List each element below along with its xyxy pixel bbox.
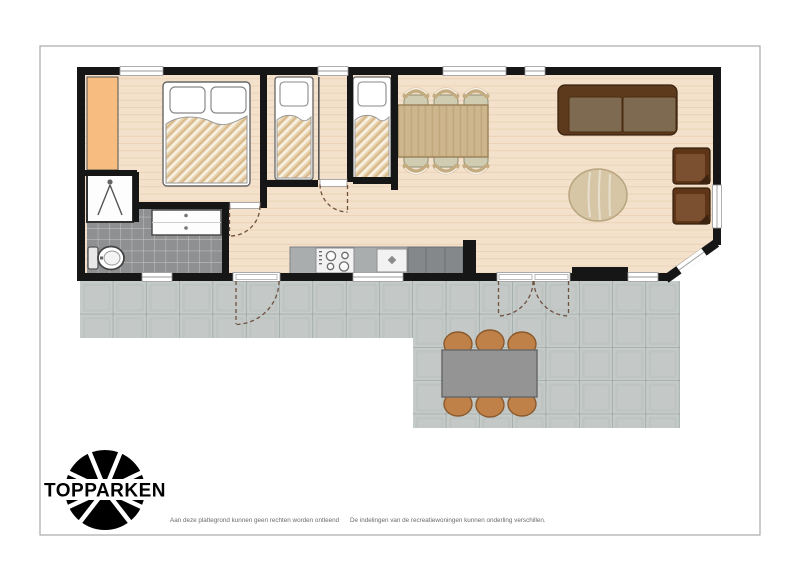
round-rug <box>569 169 627 221</box>
shower <box>87 175 133 222</box>
pillow <box>280 82 308 106</box>
wall-bedroom3-right <box>391 67 398 190</box>
logo-wordmark: TOPPARKEN <box>44 481 166 502</box>
blanket <box>166 116 247 183</box>
wall-top <box>77 67 721 75</box>
floorplan-svg: TOPPARKEN Aan deze plattegrond kunnen ge… <box>0 0 800 581</box>
armchair-2 <box>673 188 710 224</box>
terrace <box>80 281 680 428</box>
wall-bedroom2-bottom <box>260 180 318 187</box>
sofa-cushion <box>623 97 676 132</box>
wall-bedroom1-bottom <box>133 202 230 209</box>
pillow <box>211 87 246 113</box>
pillow <box>358 82 386 106</box>
disclaimer-right: De indelingen van de recreatiewoningen k… <box>350 517 546 524</box>
pillow <box>170 87 205 113</box>
dining-set <box>398 89 488 174</box>
sofa <box>558 85 677 135</box>
single-bed-2 <box>353 77 391 180</box>
blanket <box>277 115 311 178</box>
disclaimer-left: Aan deze plattegrond kunnen geen rechten… <box>170 517 340 524</box>
window-bathroom <box>142 273 172 282</box>
cooktop <box>316 248 354 273</box>
blanket <box>355 115 389 178</box>
toilet <box>88 247 124 270</box>
topparken-logo: TOPPARKEN <box>43 450 167 530</box>
window-right-wall <box>713 185 722 228</box>
wall-kitchen-stub <box>463 240 476 281</box>
wall-closet <box>77 170 137 176</box>
wall-bathroom <box>222 206 229 274</box>
vanity-washbasin <box>152 210 221 235</box>
terrace-strip <box>80 281 413 338</box>
armchair-1 <box>673 148 710 184</box>
outdoor-table <box>442 350 537 397</box>
wall-threshold <box>572 267 628 275</box>
single-bed-1 <box>275 77 313 180</box>
window-top-dining <box>443 67 506 76</box>
sofa-cushion <box>569 97 622 132</box>
dining-table <box>398 105 488 157</box>
floorplan-page: TOPPARKEN Aan deze plattegrond kunnen ge… <box>0 0 800 581</box>
window-top-living <box>525 67 545 76</box>
kitchen-sink <box>377 249 407 272</box>
master-bed <box>163 82 250 186</box>
kitchen-cabinets <box>408 247 463 274</box>
wall-shower <box>133 172 139 222</box>
kitchen <box>290 247 463 274</box>
window-bottom-living <box>628 273 658 282</box>
window-kitchen <box>353 273 403 282</box>
wall-bedroom2-3 <box>347 67 353 182</box>
window-top-bedrooms23 <box>318 67 348 76</box>
wall-thin-partition <box>318 77 320 180</box>
window-top-bedroom1 <box>120 67 163 76</box>
wardrobe <box>87 77 118 170</box>
